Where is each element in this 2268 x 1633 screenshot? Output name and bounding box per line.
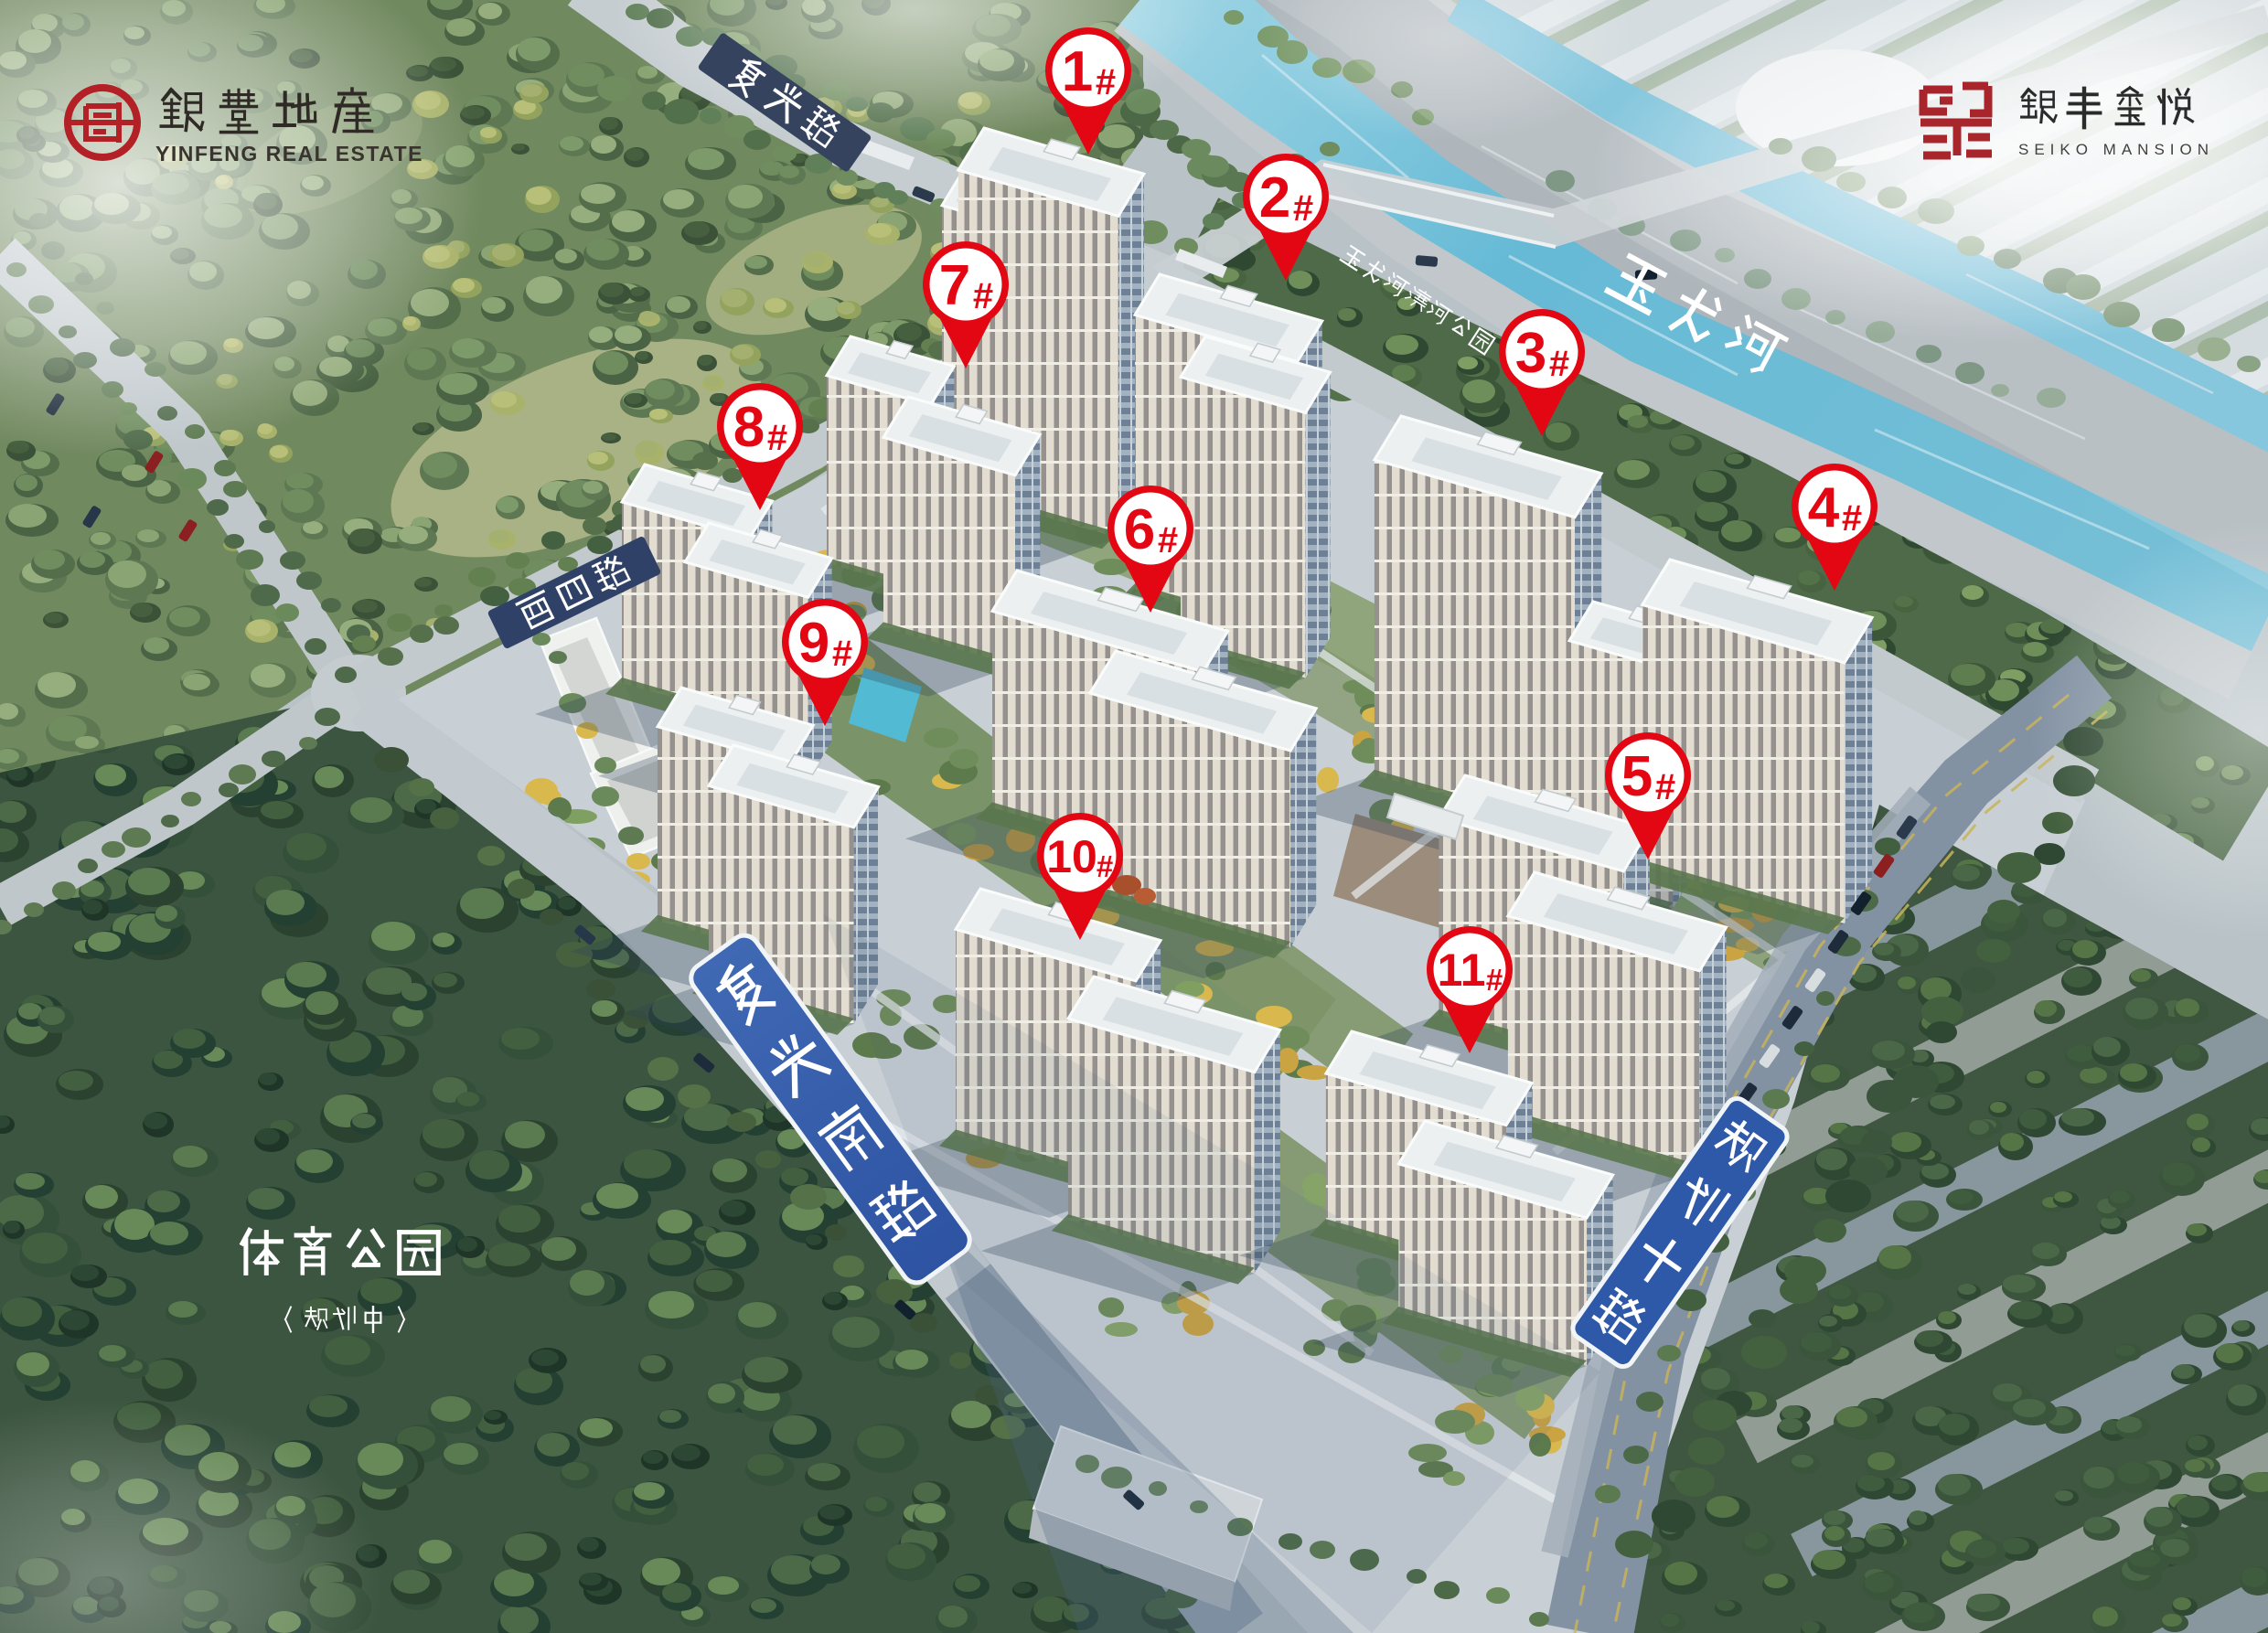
svg-text:#: #: [1655, 767, 1675, 807]
svg-text:10: 10: [1046, 831, 1097, 882]
svg-text:#: #: [1097, 849, 1113, 883]
svg-text:6: 6: [1124, 498, 1155, 561]
svg-text:#: #: [1842, 498, 1862, 539]
svg-text:#: #: [1486, 963, 1503, 997]
svg-text:#: #: [832, 634, 852, 674]
svg-text:3: 3: [1515, 322, 1546, 385]
svg-text:#: #: [1158, 520, 1178, 560]
svg-text:5: 5: [1621, 745, 1653, 808]
svg-text:7: 7: [939, 254, 970, 317]
svg-text:SEIKO MANSION: SEIKO MANSION: [2018, 141, 2214, 158]
svg-text:YINFENG REAL ESTATE: YINFENG REAL ESTATE: [155, 142, 423, 165]
svg-text:4: 4: [1808, 476, 1840, 539]
svg-text:#: #: [1549, 344, 1569, 384]
svg-text:9: 9: [798, 612, 829, 675]
svg-text:#: #: [1096, 62, 1116, 102]
svg-text:#: #: [767, 418, 787, 458]
svg-text:#: #: [973, 276, 993, 316]
svg-text:2: 2: [1259, 166, 1290, 229]
svg-text:11: 11: [1438, 945, 1486, 996]
svg-text:1: 1: [1062, 40, 1093, 103]
svg-text:#: #: [1293, 188, 1313, 229]
svg-text:8: 8: [733, 396, 765, 459]
